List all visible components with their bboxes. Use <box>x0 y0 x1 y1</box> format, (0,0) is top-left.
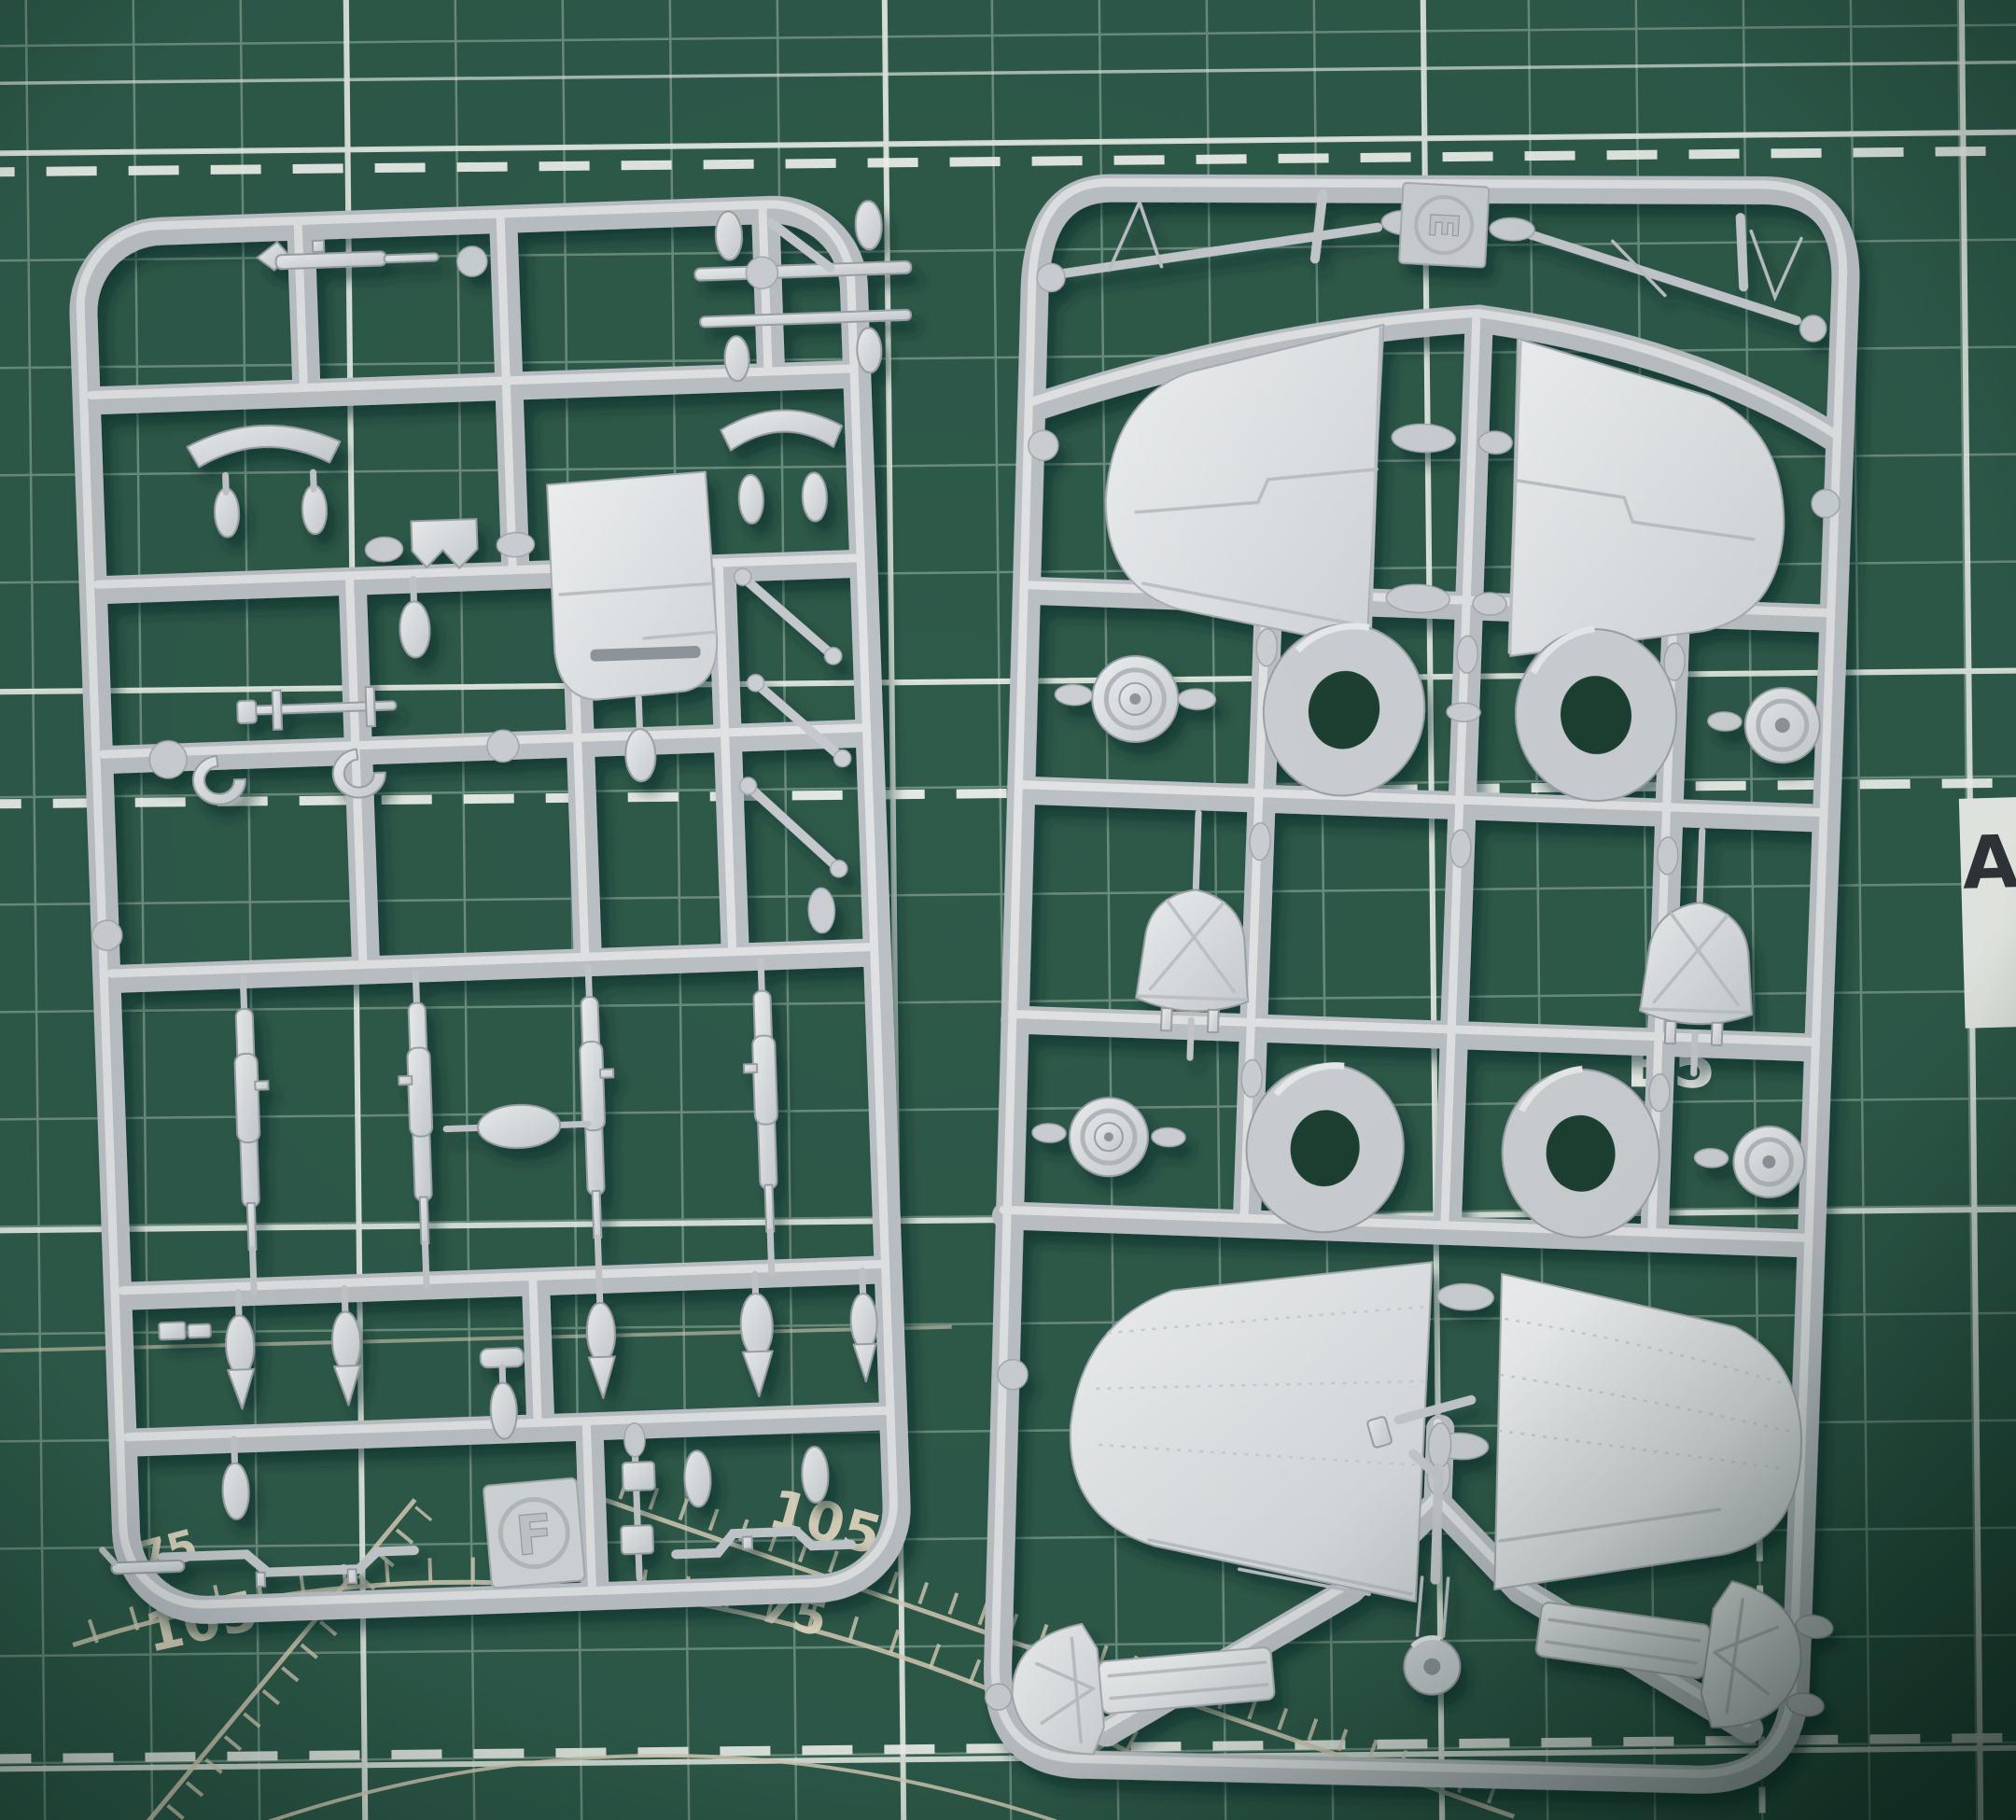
corner-shadow-overlay <box>0 0 2016 1820</box>
photo-canvas: 75 105 105 75 60 B5 A <box>0 0 2016 1820</box>
photo-stage: 75 105 105 75 60 B5 A <box>0 0 2016 1820</box>
